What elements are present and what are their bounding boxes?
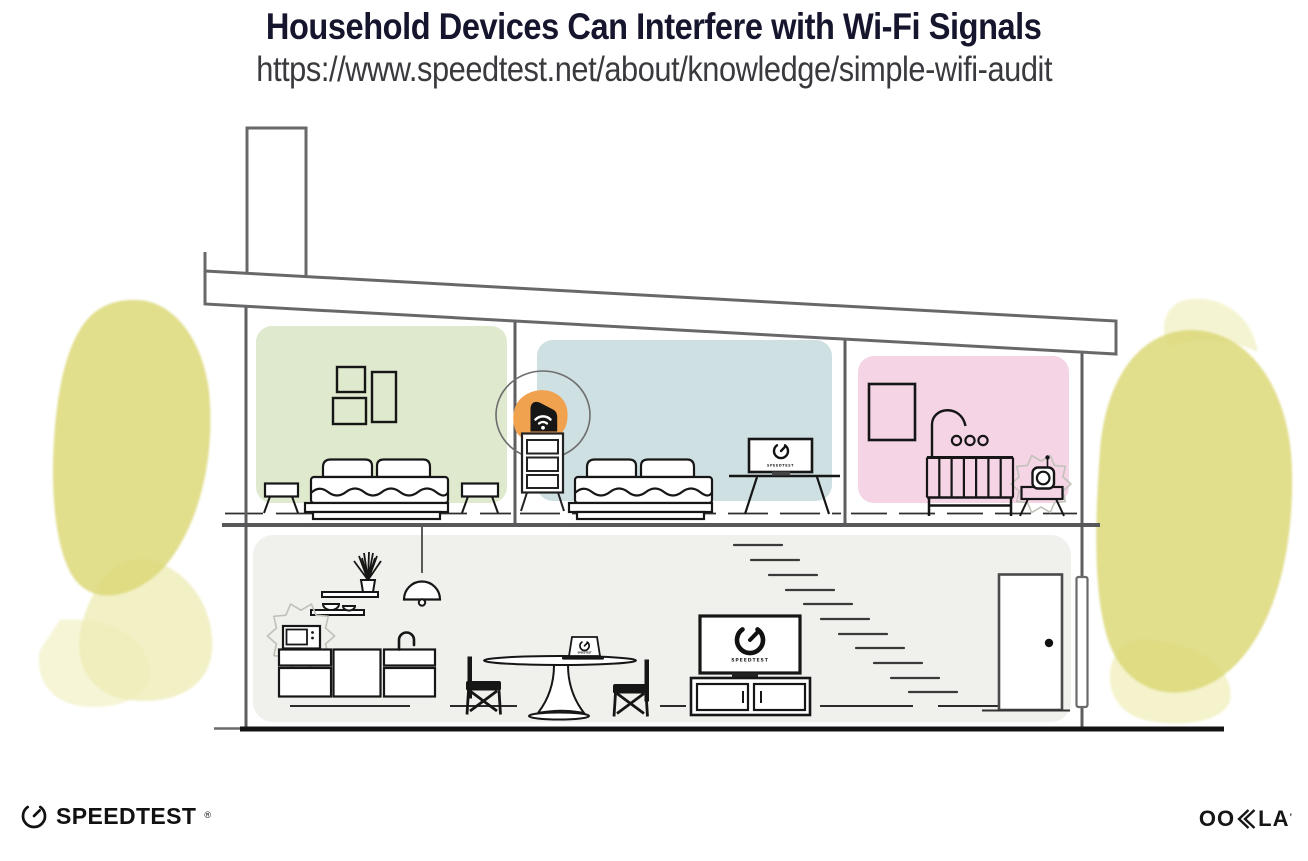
ookla-k-icon [1236,809,1257,829]
source-url-text: https://www.speedtest.net/about/knowledg… [256,50,1052,90]
speedtest-gauge-icon [21,803,48,830]
tv-console [691,678,810,715]
tree-left [39,300,212,707]
bedroom-middle-bed [569,460,712,520]
speedtest-wordmark: SPEEDTEST [56,803,196,830]
page-title: Household Devices Can Interfere with Wi-… [0,6,1308,48]
speedtest-logo: SPEEDTEST® [21,803,211,830]
antenna-dot [1045,455,1049,459]
ookla-trademark: ’ [1289,812,1293,822]
monitor-stand [772,472,790,476]
monitor-label: SPEEDTEST [767,464,794,468]
speedtest-trademark: ® [204,810,211,820]
tv: SPEEDTEST [700,616,800,678]
door-knob [1045,639,1053,647]
source-url: https://www.speedtest.net/about/knowledg… [0,50,1308,90]
ookla-logo: OO LA ’ [1199,806,1293,832]
microwave [283,626,320,652]
ookla-wordmark-la: LA [1258,806,1289,832]
downspout [1077,577,1088,707]
bed [305,460,448,520]
page-title-text: Household Devices Can Interfere with Wi-… [266,6,1042,48]
kitchen-cabinets [279,650,435,697]
infographic: SPEEDTEST [0,0,1308,861]
desk-monitor: SPEEDTEST [749,439,812,476]
tree-right [1096,299,1292,724]
chimney [247,128,306,283]
laptop-label: SPEEDTEST [577,652,592,655]
house-illustration: SPEEDTEST [0,0,1308,861]
tv-label: SPEEDTEST [731,658,769,664]
ookla-wordmark-oo: OO [1199,806,1235,832]
